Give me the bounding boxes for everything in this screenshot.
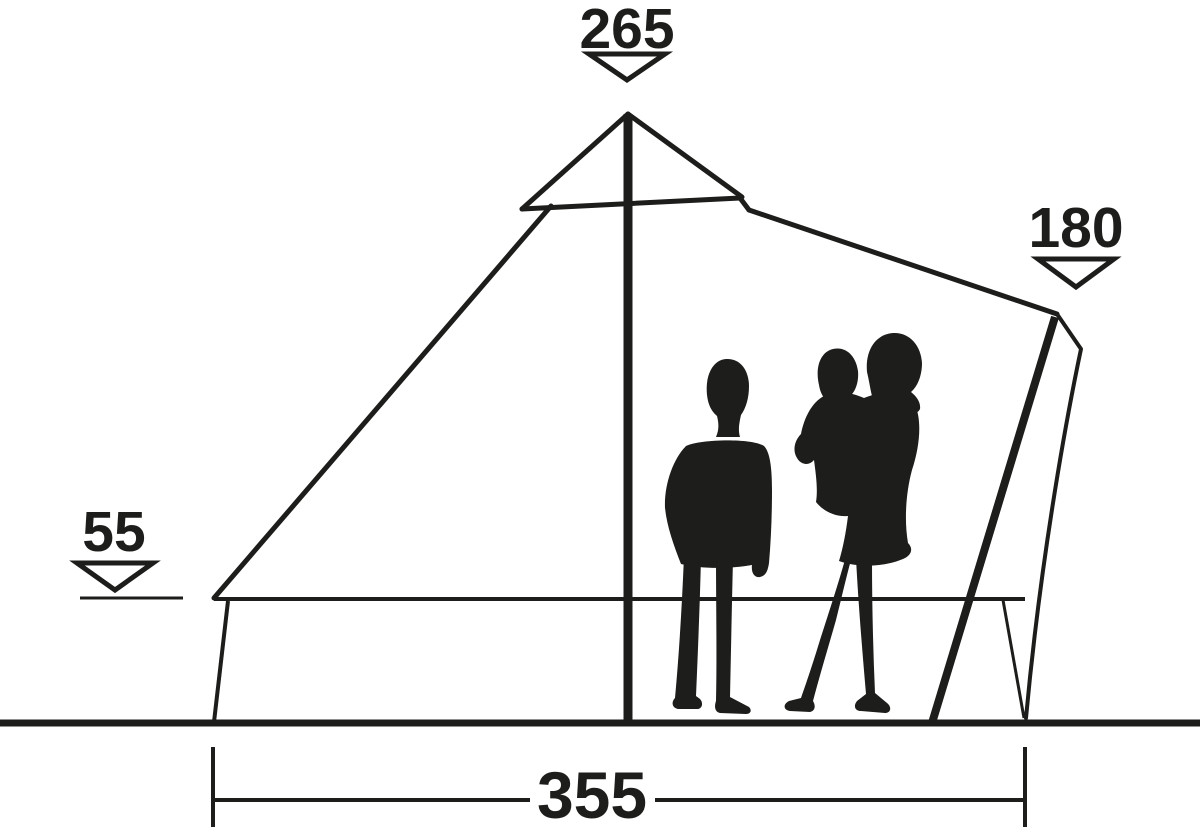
adult-and-child-torso xyxy=(794,390,919,566)
dimension-floor-width: 355 xyxy=(213,747,1025,829)
diagram-canvas: 265 180 55 355 xyxy=(0,0,1200,829)
dimension-peak-height: 265 xyxy=(579,0,674,80)
left-wall-edge xyxy=(214,601,228,722)
adult-back-leg xyxy=(855,558,890,713)
tent-dimension-diagram: 265 180 55 355 xyxy=(0,0,1200,829)
roof-right-edge xyxy=(749,210,1057,314)
dimension-side-height: 180 xyxy=(1028,196,1123,287)
wall-height-label: 55 xyxy=(82,500,145,564)
tent-outline xyxy=(214,114,1081,724)
woman-silhouette xyxy=(665,359,772,714)
roof-left-edge xyxy=(214,206,551,598)
dimension-wall-height: 55 xyxy=(77,500,183,598)
woman-left-leg xyxy=(673,556,702,709)
woman-right-leg xyxy=(715,558,751,714)
peak-cap-underside xyxy=(522,198,749,210)
woman-head xyxy=(707,359,749,437)
right-wall-inner-edge xyxy=(1003,600,1024,718)
floor-width-label: 355 xyxy=(537,758,647,829)
child-head xyxy=(818,348,858,400)
adult-front-leg xyxy=(785,556,851,712)
woman-coat xyxy=(665,440,772,577)
adult-with-child-silhouette xyxy=(785,333,922,713)
side-height-label: 180 xyxy=(1028,196,1123,260)
people-silhouettes xyxy=(665,333,922,714)
wall-arrow-down-icon xyxy=(77,563,153,590)
peak-cap-right-edge xyxy=(628,114,742,197)
side-arrow-down-icon xyxy=(1038,259,1114,287)
peak-cap-left-edge xyxy=(522,114,628,209)
front-tilted-pole xyxy=(932,317,1055,723)
